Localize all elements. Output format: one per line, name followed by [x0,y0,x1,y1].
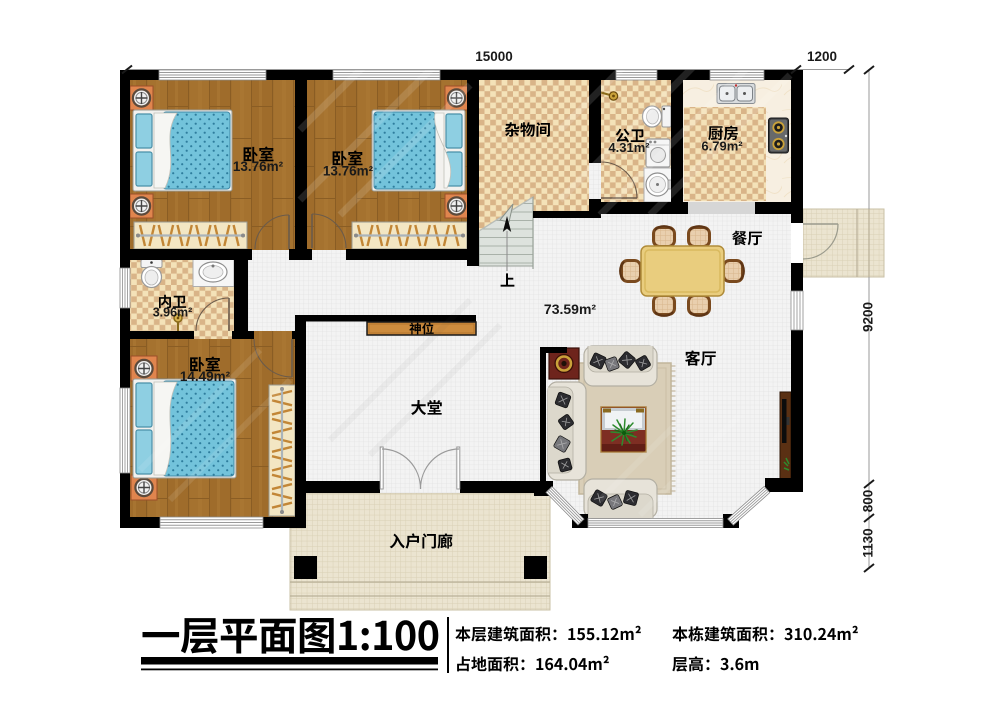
svg-text:15000: 15000 [475,49,513,64]
svg-text:14.49m²: 14.49m² [180,369,231,384]
svg-text:4.31m²: 4.31m² [608,140,650,155]
svg-text:1200: 1200 [807,49,837,64]
svg-text:13.76m²: 13.76m² [233,159,284,174]
svg-text:9200: 9200 [861,302,876,332]
svg-text:800: 800 [861,490,876,513]
svg-text:1130: 1130 [861,528,876,557]
svg-text:3.96m²: 3.96m² [153,305,193,319]
svg-text:6.79m²: 6.79m² [701,138,743,153]
svg-text:13.76m²: 13.76m² [323,164,374,179]
svg-text:73.59m²: 73.59m² [544,301,596,317]
